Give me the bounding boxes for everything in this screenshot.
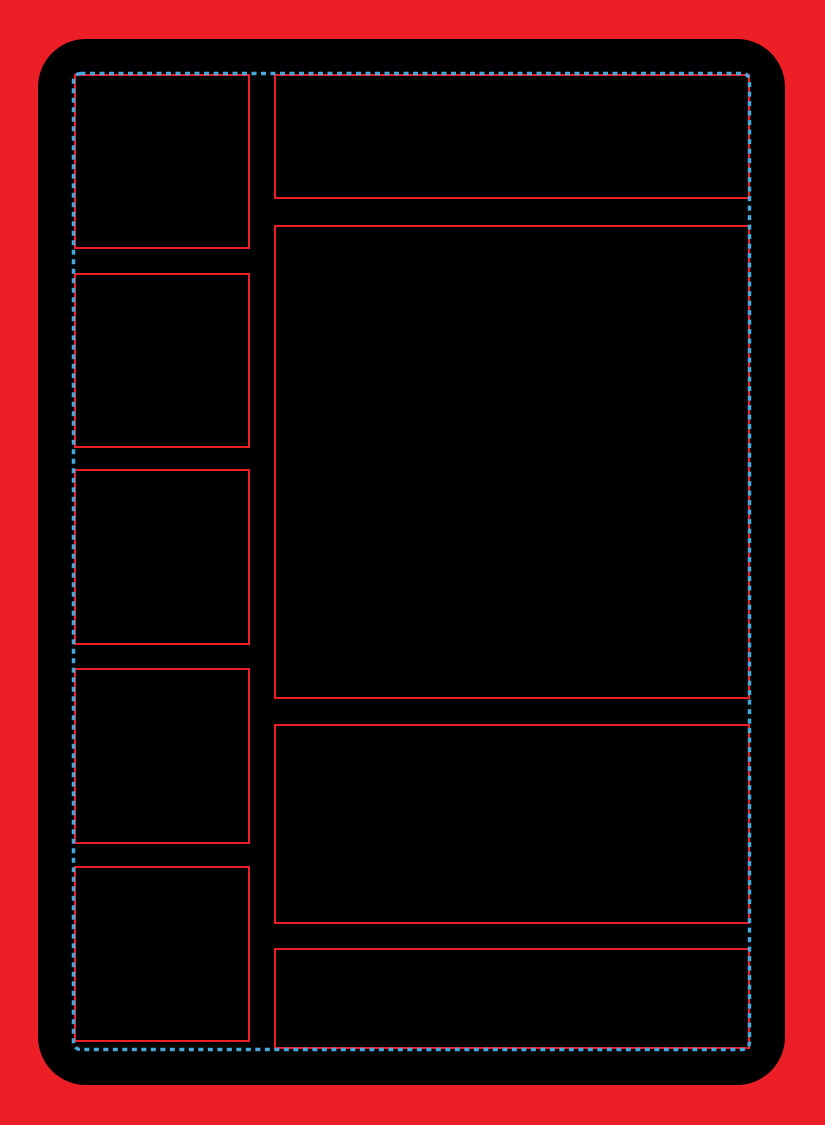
left-slot-1 (74, 74, 250, 249)
main-panel (274, 225, 750, 699)
left-slot-2 (74, 273, 250, 448)
left-slot-4 (74, 668, 250, 844)
left-slot-5 (74, 866, 250, 1042)
header-panel (274, 74, 750, 199)
footer-panel (274, 948, 750, 1049)
body-panel (274, 724, 750, 924)
left-slot-3 (74, 469, 250, 645)
